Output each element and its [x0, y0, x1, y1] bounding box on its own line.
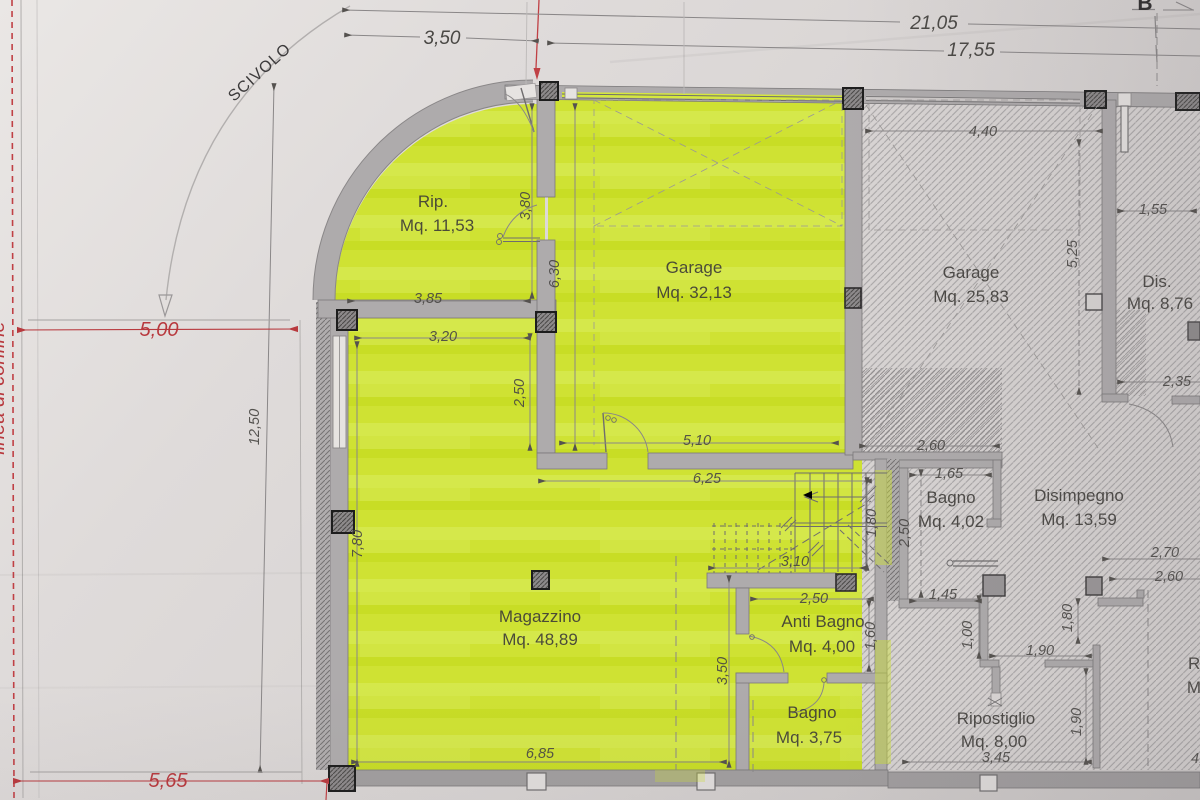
svg-text:Ri: Ri — [1188, 654, 1200, 673]
svg-text:2,35: 2,35 — [1162, 374, 1192, 390]
svg-text:6,30: 6,30 — [547, 260, 563, 288]
svg-text:Mq. 8,00: Mq. 8,00 — [961, 732, 1027, 751]
svg-text:Anti Bagno: Anti Bagno — [781, 612, 864, 631]
svg-text:3,80: 3,80 — [518, 192, 534, 220]
svg-text:Bagno: Bagno — [787, 703, 836, 722]
svg-text:1,90: 1,90 — [1026, 643, 1054, 659]
svg-text:2,50: 2,50 — [897, 519, 913, 548]
svg-text:5,65: 5,65 — [149, 770, 189, 792]
svg-text:Mq. 13,59: Mq. 13,59 — [1041, 510, 1117, 529]
svg-text:2,70: 2,70 — [1150, 545, 1179, 561]
svg-text:Mq. 11,53: Mq. 11,53 — [400, 216, 474, 235]
svg-text:Garage: Garage — [666, 258, 723, 277]
svg-text:1,80: 1,80 — [864, 509, 880, 537]
svg-text:2,50: 2,50 — [512, 379, 528, 408]
svg-text:1,90: 1,90 — [1069, 708, 1085, 736]
svg-text:6,25: 6,25 — [693, 471, 722, 487]
svg-text:1,55: 1,55 — [1139, 202, 1168, 218]
svg-text:Ripostiglio: Ripostiglio — [957, 709, 1035, 728]
svg-text:Rip.: Rip. — [418, 192, 448, 211]
svg-text:1,65: 1,65 — [935, 466, 964, 482]
svg-text:1,80: 1,80 — [1060, 604, 1076, 632]
svg-text:Magazzino: Magazzino — [499, 607, 581, 626]
svg-text:5,10: 5,10 — [683, 433, 711, 449]
svg-text:6,85: 6,85 — [526, 746, 555, 762]
svg-text:Garage: Garage — [943, 263, 1000, 282]
svg-text:3,85: 3,85 — [414, 291, 443, 307]
svg-text:Mq. 48,89: Mq. 48,89 — [502, 630, 578, 649]
svg-text:Mq. 8,76: Mq. 8,76 — [1127, 294, 1193, 313]
svg-text:Bagno: Bagno — [926, 488, 975, 507]
svg-text:1,60: 1,60 — [863, 622, 879, 650]
svg-text:4,40: 4,40 — [969, 124, 997, 140]
svg-text:21,05: 21,05 — [909, 13, 958, 34]
svg-text:3,20: 3,20 — [429, 329, 457, 345]
svg-text:Mq. 4,02: Mq. 4,02 — [918, 512, 984, 531]
svg-text:3,10: 3,10 — [781, 554, 809, 570]
svg-text:12,50: 12,50 — [247, 409, 263, 445]
svg-text:17,55: 17,55 — [947, 40, 995, 61]
svg-text:4,: 4, — [1191, 751, 1200, 767]
svg-text:M: M — [1187, 678, 1200, 697]
svg-text:5,25: 5,25 — [1065, 239, 1081, 268]
svg-text:linea di confine: linea di confine — [0, 321, 9, 454]
svg-text:3,45: 3,45 — [982, 750, 1011, 766]
svg-text:B: B — [1137, 0, 1152, 15]
svg-text:Disimpegno: Disimpegno — [1034, 486, 1124, 505]
svg-text:Mq. 3,75: Mq. 3,75 — [776, 728, 842, 747]
svg-text:2,50: 2,50 — [799, 591, 828, 607]
svg-text:Dis.: Dis. — [1142, 272, 1171, 291]
svg-text:3,50: 3,50 — [715, 657, 731, 685]
svg-text:2,60: 2,60 — [1154, 569, 1183, 585]
svg-text:5,00: 5,00 — [140, 319, 179, 341]
svg-text:Mq. 4,00: Mq. 4,00 — [789, 637, 855, 656]
svg-text:2,60: 2,60 — [916, 438, 945, 454]
svg-text:1,00: 1,00 — [960, 621, 976, 649]
svg-text:Mq. 25,83: Mq. 25,83 — [933, 287, 1009, 306]
svg-text:7,80: 7,80 — [350, 530, 366, 558]
svg-text:Mq. 32,13: Mq. 32,13 — [656, 283, 732, 302]
svg-text:3,50: 3,50 — [424, 28, 461, 49]
svg-text:1,45: 1,45 — [929, 587, 958, 603]
